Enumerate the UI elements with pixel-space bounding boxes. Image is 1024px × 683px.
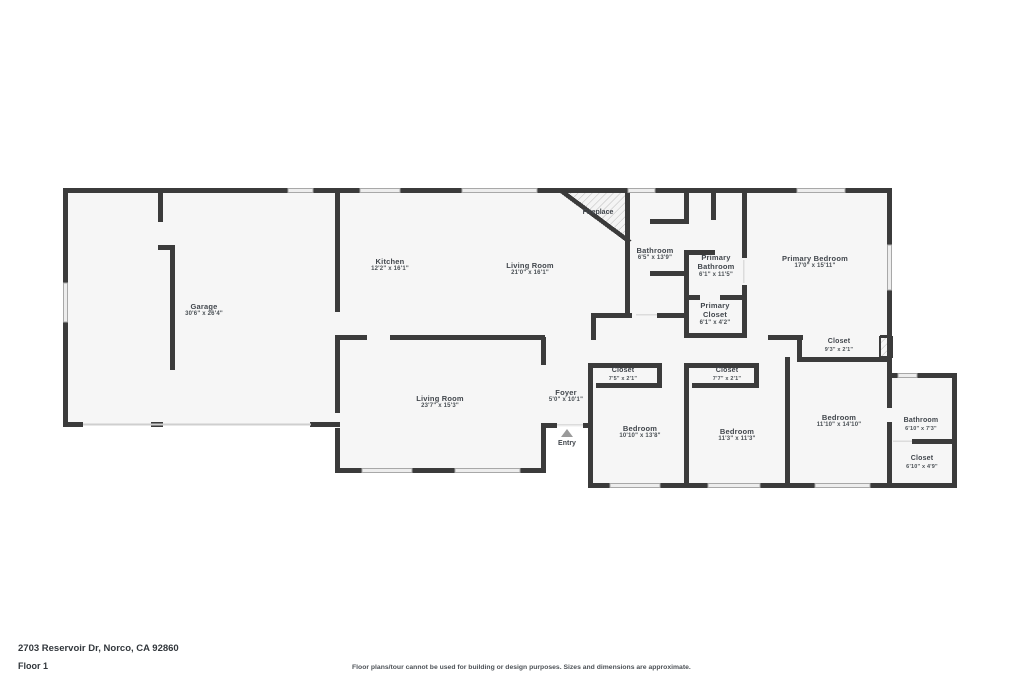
fireplace-label: Fireplace [583,209,614,216]
floor-plan-svg [0,0,1024,683]
floor-label: Floor 1 [18,661,48,671]
entry-direction-icon [561,429,573,437]
disclaimer-text: Floor plans/tour cannot be used for buil… [352,664,691,671]
entry-label: Entry [558,440,576,447]
address-text: 2703 Reservoir Dr, Norco, CA 92860 [18,643,179,654]
floor-plan-canvas: Garage 30'6" x 26'4" Kitchen 12'2" x 16'… [0,0,1024,683]
